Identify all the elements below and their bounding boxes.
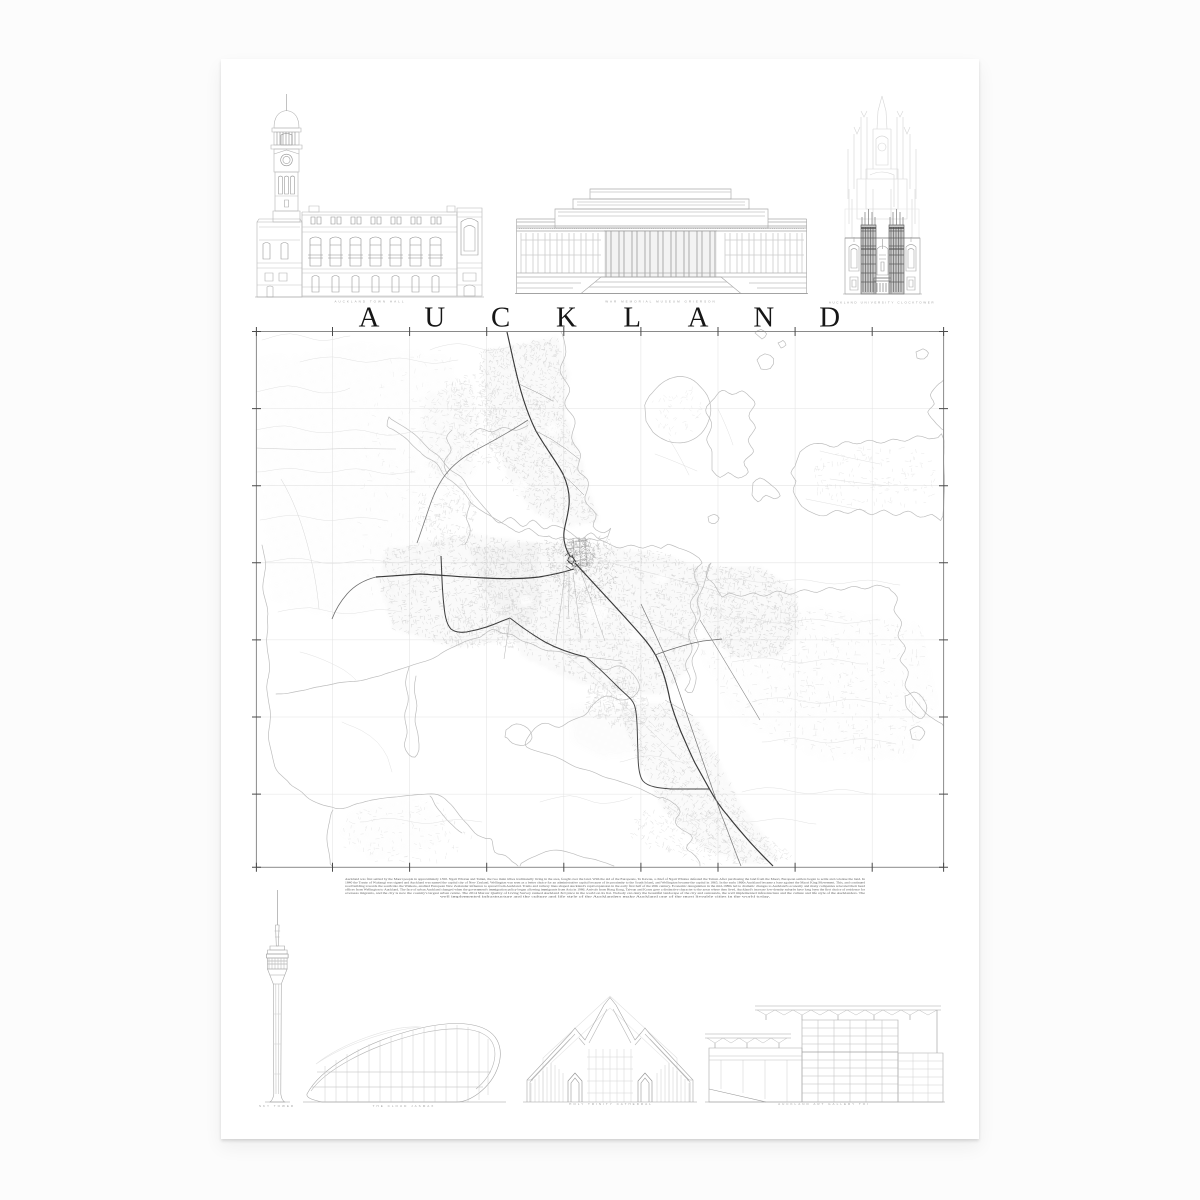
svg-text:AUCKLAND TOWN HALL: AUCKLAND TOWN HALL — [334, 300, 405, 304]
svg-text:well implemented infrastructur: well implemented infrastructure and the … — [440, 895, 771, 899]
svg-text:L: L — [623, 302, 641, 334]
svg-text:N: N — [753, 302, 774, 334]
svg-text:A: A — [688, 302, 709, 334]
svg-text:SKY TOWER: SKY TOWER — [259, 1104, 295, 1108]
svg-text:WAR MEMORIAL MUSEUM GRIERSON: WAR MEMORIAL MUSEUM GRIERSON — [605, 300, 716, 304]
svg-text:THE CLOUD JASMAX: THE CLOUD JASMAX — [373, 1104, 436, 1108]
svg-text:A: A — [359, 302, 380, 334]
svg-text:D: D — [819, 302, 840, 334]
svg-text:C: C — [491, 302, 510, 334]
svg-text:K: K — [556, 302, 577, 334]
svg-text:AUCKLAND UNIVERSITY CLOCKTOWER: AUCKLAND UNIVERSITY CLOCKTOWER — [829, 301, 935, 305]
svg-text:HOLY TRINITY CATHEDRAL: HOLY TRINITY CATHEDRAL — [569, 1102, 653, 1106]
svg-text:AUCKLAND ART GALLERY TOI: AUCKLAND ART GALLERY TOI — [778, 1102, 870, 1106]
svg-text:U: U — [424, 302, 445, 334]
